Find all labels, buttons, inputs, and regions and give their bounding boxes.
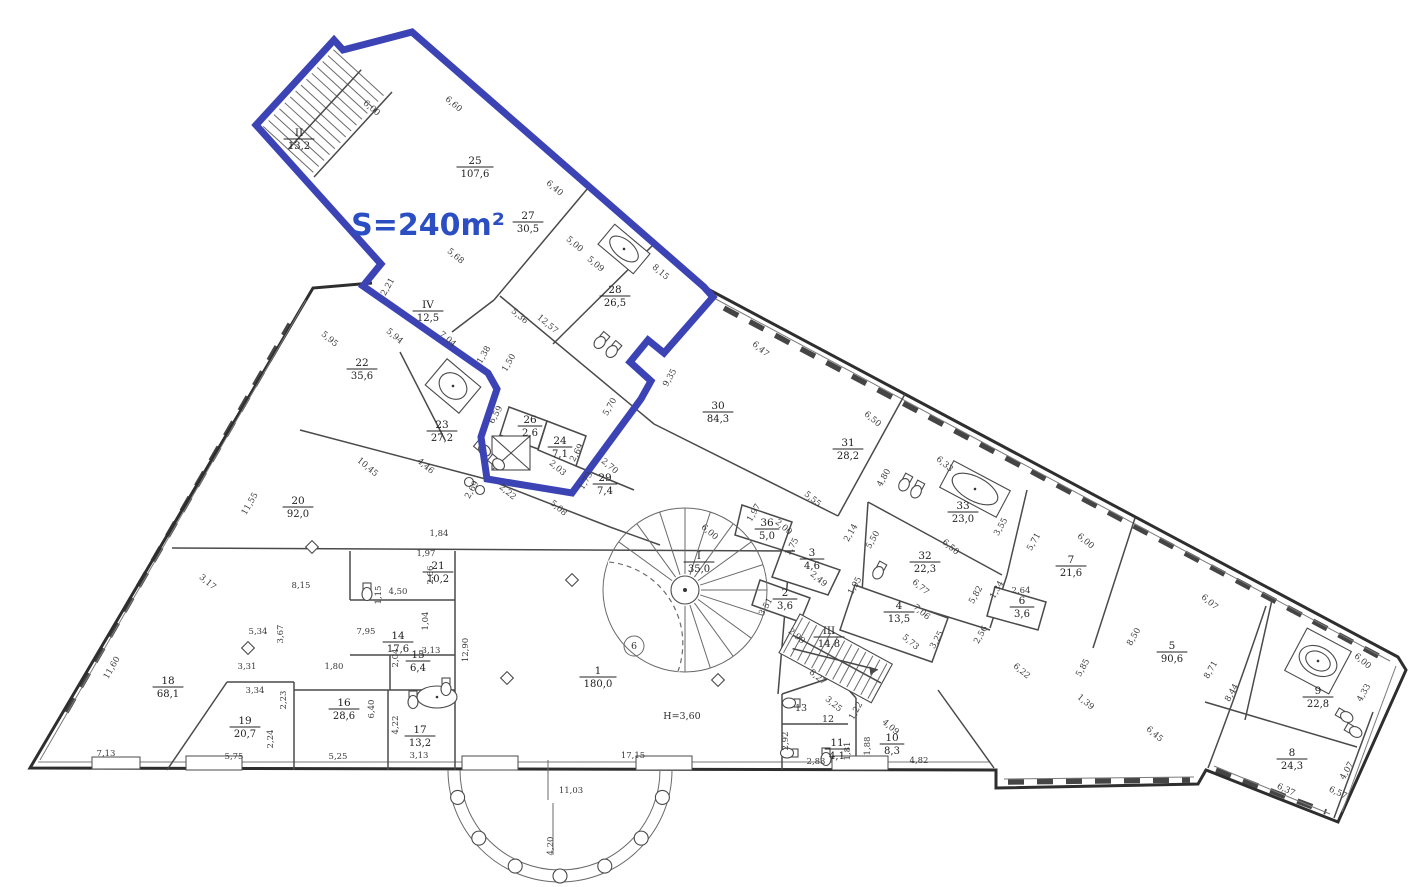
dim-label: 1,15 [374, 586, 384, 605]
dim-label: 2,14 [842, 522, 860, 543]
dim-label: 4,22 [391, 716, 401, 735]
room-area: 68,1 [157, 689, 179, 700]
dim-label: 6,40 [367, 700, 377, 719]
misc-label: 13 [795, 703, 807, 714]
dim-label: 9,35 [661, 367, 679, 388]
room-area: 84,3 [707, 414, 729, 425]
walls-layer [30, 283, 1406, 822]
dim-label: 8,50 [1125, 626, 1143, 647]
dim-label: 2,83 [807, 757, 826, 767]
dim-label: 5,25 [329, 752, 348, 762]
toilet-icon [441, 678, 451, 696]
dim-label: 5,70 [601, 396, 619, 417]
dim-label: 1,39 [1075, 693, 1096, 713]
dim-label: 7,95 [357, 627, 376, 637]
dim-label: 6,00 [1352, 652, 1373, 672]
floor-plan-drawing: S=240m² II13,225107,62730,52826,5IV12,52… [0, 0, 1426, 887]
room-area: 23,0 [952, 514, 974, 525]
dim-label: 1,88 [863, 737, 873, 756]
column-icon [566, 574, 579, 587]
dim-label: 2,21 [379, 276, 397, 297]
dim-label: 6,50 [940, 538, 961, 558]
room-number: 26 [523, 414, 537, 426]
room-area: 5,0 [759, 531, 775, 542]
dim-label: 6,45 [1144, 725, 1165, 745]
toilet-icon [604, 340, 623, 360]
room-number: 29 [598, 472, 611, 484]
room-area: 2,6 [522, 428, 538, 439]
room-number: II [295, 127, 303, 139]
dim-label: 5,34 [249, 627, 268, 637]
dim-label: 1,97 [417, 549, 436, 559]
dim-label: 3,31 [238, 662, 257, 672]
dim-label: 11,55 [240, 491, 261, 517]
dim-label: 5,08 [548, 499, 569, 519]
dim-label: 4,20 [546, 837, 556, 856]
dim-label: 4,80 [875, 467, 893, 488]
dim-label: 5,82 [967, 584, 985, 605]
room-number: 1 [595, 665, 602, 677]
dim-label: 6,47 [750, 340, 771, 360]
toilet-icon [1335, 707, 1355, 724]
dim-label: 3,25 [823, 695, 844, 715]
dim-label: 8,15 [650, 263, 671, 283]
dim-label: 2,92 [781, 732, 791, 751]
dim-label: 5,36 [509, 307, 530, 327]
room-number: 19 [238, 715, 251, 727]
room-number: 23 [435, 419, 448, 431]
room-labels-layer: II13,225107,62730,52826,5IV12,52235,6232… [153, 127, 1334, 772]
dim-label: 2,04 [391, 649, 401, 668]
room-number: 4 [896, 600, 903, 612]
misc-label: 6 [631, 641, 637, 652]
room-number: 14 [391, 630, 405, 642]
dim-label: 6,00 [1075, 532, 1096, 552]
room-number: 8 [1289, 747, 1296, 759]
dim-label: 4,82 [910, 756, 929, 766]
dim-label: 3,67 [276, 625, 286, 644]
dim-label: 5,50 [864, 529, 882, 550]
dim-label: 1,22 [847, 700, 865, 721]
room-area: 107,6 [461, 169, 490, 180]
room-number: 32 [918, 550, 931, 562]
room-area: 27,2 [431, 433, 453, 444]
room-number: 30 [711, 400, 724, 412]
room-area: 12,5 [417, 313, 439, 324]
dim-label: 8,71 [1202, 659, 1220, 680]
column-icon [451, 790, 465, 804]
toilet-icon [909, 480, 926, 500]
dim-label: 2,56 [972, 624, 990, 645]
room-number: 7 [1068, 554, 1075, 566]
dim-label: 5,94 [384, 327, 405, 347]
dim-label: 2,24 [266, 730, 276, 749]
room-area: 4,6 [804, 561, 820, 572]
room-area: 13,2 [288, 141, 310, 152]
dim-label: 1,80 [325, 662, 344, 672]
dim-label: 3,55 [992, 516, 1010, 537]
room-number: IV [422, 299, 434, 311]
room-number: 9 [1315, 685, 1322, 697]
toilet-icon [1344, 722, 1364, 739]
highlight-boundary [256, 32, 713, 493]
room-area: 14,8 [818, 639, 840, 650]
room-number: 2 [782, 587, 789, 599]
dim-label: 5,68 [445, 247, 466, 267]
dim-labels-layer: 6,006,606,405,005,098,155,682,215,955,94… [97, 95, 1374, 856]
dim-label: 11,60 [102, 655, 123, 681]
dim-label: 3,34 [246, 686, 265, 696]
colonnade [448, 760, 672, 883]
room-area: 26,5 [604, 298, 626, 309]
dim-label: 1,04 [421, 612, 431, 631]
room-number: 24 [553, 435, 567, 447]
dim-label: 1,38 [475, 344, 493, 365]
room-number: 17 [413, 724, 426, 736]
misc-label: 12 [822, 714, 834, 725]
dim-label: 6,40 [544, 179, 565, 199]
room-area: 28,2 [837, 451, 859, 462]
column-icon [655, 790, 669, 804]
dim-label: 6,07 [1199, 593, 1220, 613]
room-number: I [697, 550, 701, 562]
dim-label: 12,57 [535, 313, 560, 336]
room-area: 7,4 [597, 486, 613, 497]
dim-label: 7,13 [97, 749, 116, 759]
dim-label: 3,13 [422, 646, 441, 656]
room-area: 13,2 [409, 738, 431, 749]
toilet-icon [362, 583, 372, 601]
dim-label: 6,60 [443, 95, 464, 115]
column-icon [242, 642, 255, 655]
column-icon [508, 859, 522, 873]
toilet-icon [871, 561, 888, 581]
highlight-outline: S=240m² [256, 32, 713, 493]
room-area: 35,0 [688, 564, 710, 575]
dim-label: 4,50 [389, 587, 408, 597]
dim-label: 8,15 [292, 581, 311, 591]
room-area: 21,6 [1060, 568, 1082, 579]
room-number: 31 [841, 437, 854, 449]
window-sills [92, 756, 888, 770]
dim-label: 5,71 [1025, 531, 1043, 552]
column-icon [712, 674, 725, 687]
room-number: 16 [337, 697, 351, 709]
dim-label: 5,00 [564, 235, 585, 255]
column-icon [306, 541, 319, 554]
dim-label: 3,17 [197, 573, 218, 593]
room-number: 36 [760, 517, 774, 529]
column-icon [472, 831, 486, 845]
room-number: 18 [161, 675, 174, 687]
misc-label: H=3,60 [663, 711, 700, 722]
column-icon [501, 672, 514, 685]
room-number: III [823, 625, 835, 637]
column-icon [598, 859, 612, 873]
room-area: 35,6 [351, 371, 373, 382]
room-number: 28 [608, 284, 621, 296]
dim-label: 5,95 [319, 330, 340, 350]
dim-label: 1,50 [500, 352, 518, 373]
room-area: 3,6 [777, 601, 793, 612]
highlight-area-label: S=240m² [351, 208, 505, 243]
room-number: 22 [355, 357, 368, 369]
dim-label: 10,45 [355, 456, 380, 479]
dim-label: 2,64 [1012, 586, 1031, 596]
room-number: 27 [521, 210, 534, 222]
floor-plan-page: S=240m² II13,225107,62730,52826,5IV12,52… [0, 0, 1426, 887]
room-number: 33 [956, 500, 969, 512]
dim-label: 6,22 [1011, 662, 1032, 682]
room-area: 90,6 [1161, 654, 1183, 665]
room-number: 20 [291, 495, 304, 507]
room-area: 180,0 [584, 679, 613, 690]
room-area: 28,6 [333, 711, 355, 722]
dim-label: 12,90 [461, 638, 471, 662]
room-area: 22,3 [914, 564, 936, 575]
bathtub-icon [425, 359, 481, 413]
room-area: 13,5 [888, 614, 910, 625]
dim-label: 2,66 [426, 566, 436, 585]
column-icon [634, 831, 648, 845]
dim-label: 1,84 [430, 529, 449, 539]
room-area: 8,3 [884, 746, 900, 757]
room-number: 6 [1019, 595, 1026, 607]
room-area: 6,4 [410, 663, 426, 674]
dim-label: 5,09 [585, 255, 606, 275]
room-number: 25 [468, 155, 481, 167]
dim-label: 2,23 [279, 691, 289, 710]
dim-label: 6,50 [862, 410, 883, 430]
dim-label: 17,15 [621, 751, 645, 761]
dim-label: 3,13 [410, 751, 429, 761]
room-number: 3 [809, 547, 816, 559]
dim-label: 11,03 [559, 786, 583, 796]
dim-label: 5,75 [225, 752, 244, 762]
room-area: 30,5 [517, 224, 539, 235]
dim-label: 5,85 [1074, 657, 1092, 678]
column-icon [553, 869, 567, 883]
room-number: 11 [830, 737, 843, 749]
dim-label: 1,81 [843, 742, 853, 761]
room-area: 92,0 [287, 509, 309, 520]
room-number: 5 [1169, 640, 1176, 652]
room-area: 22,8 [1307, 699, 1329, 710]
dim-label: 6,77 [910, 578, 931, 598]
room-area: 20,7 [234, 729, 256, 740]
room-area: 3,6 [1014, 609, 1030, 620]
room-area: 24,3 [1281, 761, 1303, 772]
dim-label: 4,46 [415, 457, 436, 477]
dim-label: 4,33 [1355, 682, 1373, 703]
toilet-icon [408, 691, 418, 709]
